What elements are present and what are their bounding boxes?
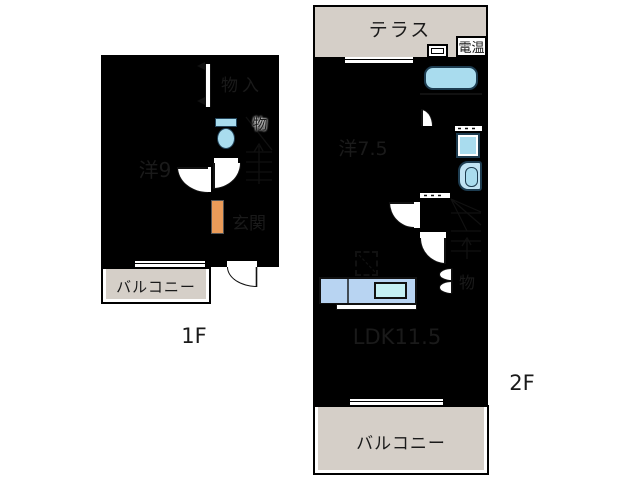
window — [135, 261, 205, 267]
plan-2f-outer-wall — [313, 57, 488, 405]
room-ldk-label: LDK11.5 — [337, 325, 457, 349]
kitchen-stove-edge — [319, 304, 336, 310]
terrace-step-inner — [431, 48, 444, 54]
toilet-bowl — [217, 128, 235, 149]
kitchen-counter-edge — [336, 304, 417, 310]
kitchen-sink — [374, 282, 407, 299]
shoe-cabinet — [211, 200, 224, 234]
storage-2f-label: 物 — [453, 270, 481, 291]
washing-machine — [456, 133, 480, 158]
room-storage-in-label: 物入 — [213, 71, 271, 95]
wall — [420, 126, 455, 131]
wall — [319, 232, 420, 238]
floor-1f-label: 1F — [172, 324, 216, 348]
room-western75-label: 洋7.5 — [330, 135, 396, 159]
sliding-door-opening — [420, 193, 450, 198]
bathtub — [424, 66, 478, 90]
sliding-door-opening — [455, 126, 482, 131]
floor-plan-canvas: 電温 テラス — [0, 0, 638, 480]
front-door-swing — [227, 267, 257, 287]
closet-door — [205, 64, 211, 107]
closet-door-arrow-icon — [197, 97, 205, 105]
toilet-2f — [458, 161, 482, 191]
window — [345, 57, 413, 63]
entrance-label: 玄関 — [226, 210, 272, 232]
terrace-step — [427, 44, 448, 58]
washing-machine-drum — [460, 137, 476, 154]
balcony-2f-label: バルコニー — [350, 430, 452, 453]
water-heater-label: 電温 — [457, 38, 486, 55]
toilet-2f-bowl — [465, 167, 478, 187]
wall — [241, 186, 273, 192]
closet-door-arrow-icon — [197, 62, 205, 70]
floor-2f-label: 2F — [500, 371, 544, 395]
wall — [420, 93, 482, 95]
balcony-1f-label: バルコニー — [104, 275, 208, 297]
terrace-label: テラス — [358, 15, 442, 41]
refrigerator-space — [355, 251, 378, 276]
room-western9-label: 洋9 — [125, 156, 185, 180]
toilet-tank — [215, 118, 237, 127]
window — [350, 399, 443, 405]
stair-storage-label: 物 — [247, 113, 273, 133]
door-opening — [414, 202, 420, 228]
wall — [241, 116, 246, 192]
